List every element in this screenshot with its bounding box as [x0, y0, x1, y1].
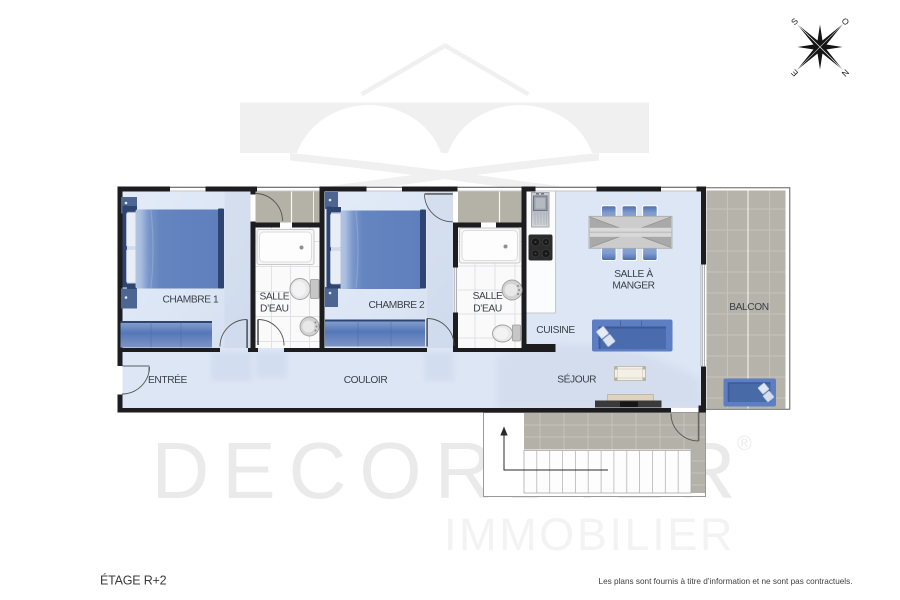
svg-text:CUISINE: CUISINE	[536, 325, 575, 336]
svg-text:MANGER: MANGER	[612, 280, 654, 291]
svg-text:COULOIR: COULOIR	[344, 375, 388, 386]
svg-text:®: ®	[737, 433, 752, 455]
svg-text:SALLE À: SALLE À	[614, 267, 653, 280]
svg-text:ENTRÉE: ENTRÉE	[148, 373, 188, 386]
svg-text:ÉTAGE R+2: ÉTAGE R+2	[100, 573, 167, 588]
svg-text:SALLE: SALLE	[473, 291, 503, 302]
svg-text:D’EAU: D’EAU	[260, 303, 289, 314]
svg-text:D’EAU: D’EAU	[473, 304, 502, 315]
svg-text:CHAMBRE 1: CHAMBRE 1	[162, 294, 219, 305]
svg-text:Les plans sont fournis à titre: Les plans sont fournis à titre d’informa…	[599, 577, 853, 586]
svg-text:CHAMBRE 2: CHAMBRE 2	[368, 300, 425, 311]
svg-text:SÉJOUR: SÉJOUR	[557, 373, 596, 386]
svg-text:IMMOBILIER: IMMOBILIER	[444, 509, 735, 560]
svg-text:BALCON: BALCON	[729, 302, 769, 313]
svg-text:SALLE: SALLE	[259, 291, 289, 302]
